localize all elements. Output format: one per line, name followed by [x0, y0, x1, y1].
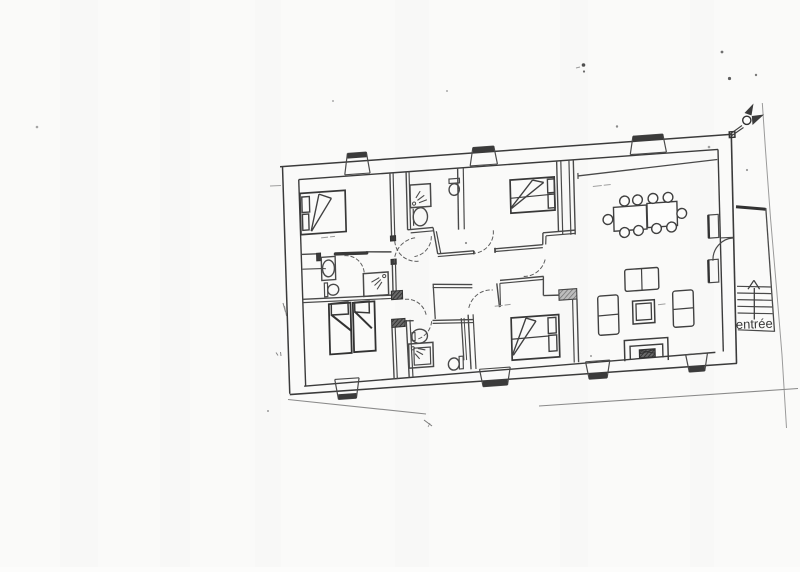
svg-text:entrée: entrée	[736, 316, 773, 332]
